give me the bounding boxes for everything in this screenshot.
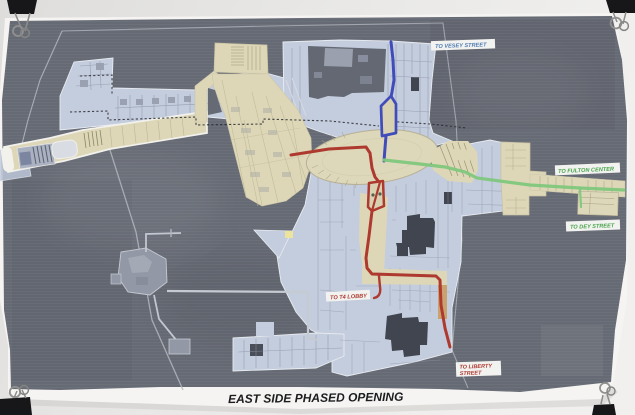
svg-text:TO LIBERTY: TO LIBERTY [459, 364, 493, 371]
svg-text:STREET: STREET [460, 370, 483, 377]
svg-text:EAST SIDE PHASED OPENING: EAST SIDE PHASED OPENING [228, 390, 404, 406]
